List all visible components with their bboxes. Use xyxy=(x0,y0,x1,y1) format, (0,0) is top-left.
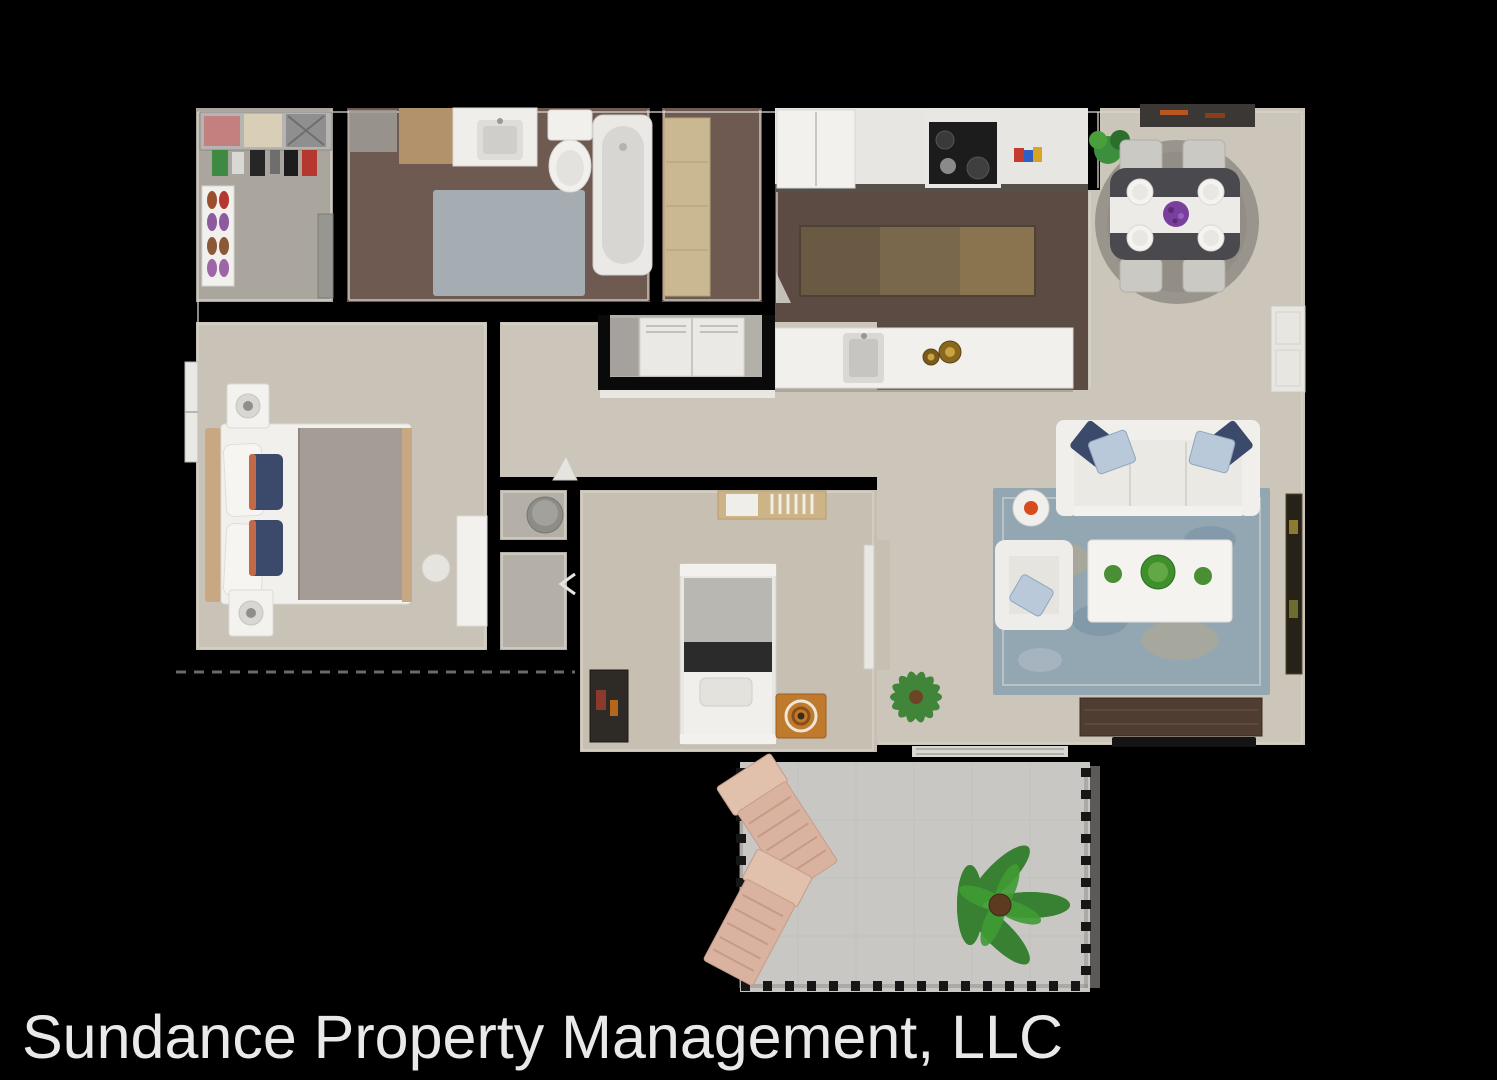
bookshelf xyxy=(590,670,628,742)
table-plant-small2 xyxy=(1194,567,1212,585)
bathtub-drain xyxy=(619,143,627,151)
footer-company-name: Sundance Property Management, LLC xyxy=(22,1002,1472,1072)
coffee-table xyxy=(1088,540,1232,622)
sink-basin-inner xyxy=(483,126,517,154)
headboard xyxy=(205,428,221,602)
sofa xyxy=(1056,419,1260,516)
nightstand-bottom xyxy=(229,590,273,636)
table-plant-small xyxy=(1104,565,1122,583)
faucet xyxy=(497,118,503,124)
toilet-tank xyxy=(548,110,592,140)
runner-rug xyxy=(800,226,1035,296)
window xyxy=(185,362,198,462)
queen-bed xyxy=(205,424,412,604)
dresser xyxy=(318,214,333,298)
laundry-closet xyxy=(598,315,775,398)
wall-art xyxy=(1286,494,1302,674)
patio-edge-strip xyxy=(1090,766,1100,988)
side-table xyxy=(1013,490,1049,526)
centerpiece xyxy=(1163,201,1189,227)
doormat-accent xyxy=(1160,110,1188,115)
wall-shelf xyxy=(718,491,826,519)
floor-plan xyxy=(0,0,1497,1080)
armchair xyxy=(995,540,1073,630)
interior-door xyxy=(1271,306,1305,392)
pillow xyxy=(700,678,752,706)
island-faucet xyxy=(861,333,867,339)
toy-box xyxy=(776,694,826,738)
vanity-cabinet xyxy=(399,108,455,164)
island-sink-inner xyxy=(849,339,878,377)
gray-duvet xyxy=(299,428,409,600)
doormat xyxy=(1140,104,1255,127)
bath-rug xyxy=(433,190,585,296)
corner-unit xyxy=(349,110,397,152)
shoe-rack xyxy=(202,186,234,286)
footboard xyxy=(402,428,412,602)
orange-bowl xyxy=(1024,501,1038,515)
hall-closets xyxy=(527,497,563,533)
twin-bed xyxy=(680,564,776,744)
doormat-accent2 xyxy=(1205,113,1225,118)
gray-blanket xyxy=(684,578,772,642)
pot xyxy=(940,158,956,174)
bifold-door xyxy=(600,390,775,398)
toilet-seat xyxy=(556,150,584,186)
stool xyxy=(422,554,450,582)
desk xyxy=(457,516,487,626)
entry-threshold xyxy=(912,746,1068,757)
bedroom2-doorway xyxy=(877,540,890,670)
nightstand-top xyxy=(227,384,269,428)
folded-clothes-cream xyxy=(244,114,282,147)
folded-clothes-pink xyxy=(204,116,240,146)
black-stripe xyxy=(684,642,772,672)
door-panel xyxy=(864,545,874,669)
closet2-floor xyxy=(500,552,567,650)
screenshot-stage: Sundance Property Management, LLC xyxy=(0,0,1497,1080)
tv xyxy=(1112,737,1256,747)
